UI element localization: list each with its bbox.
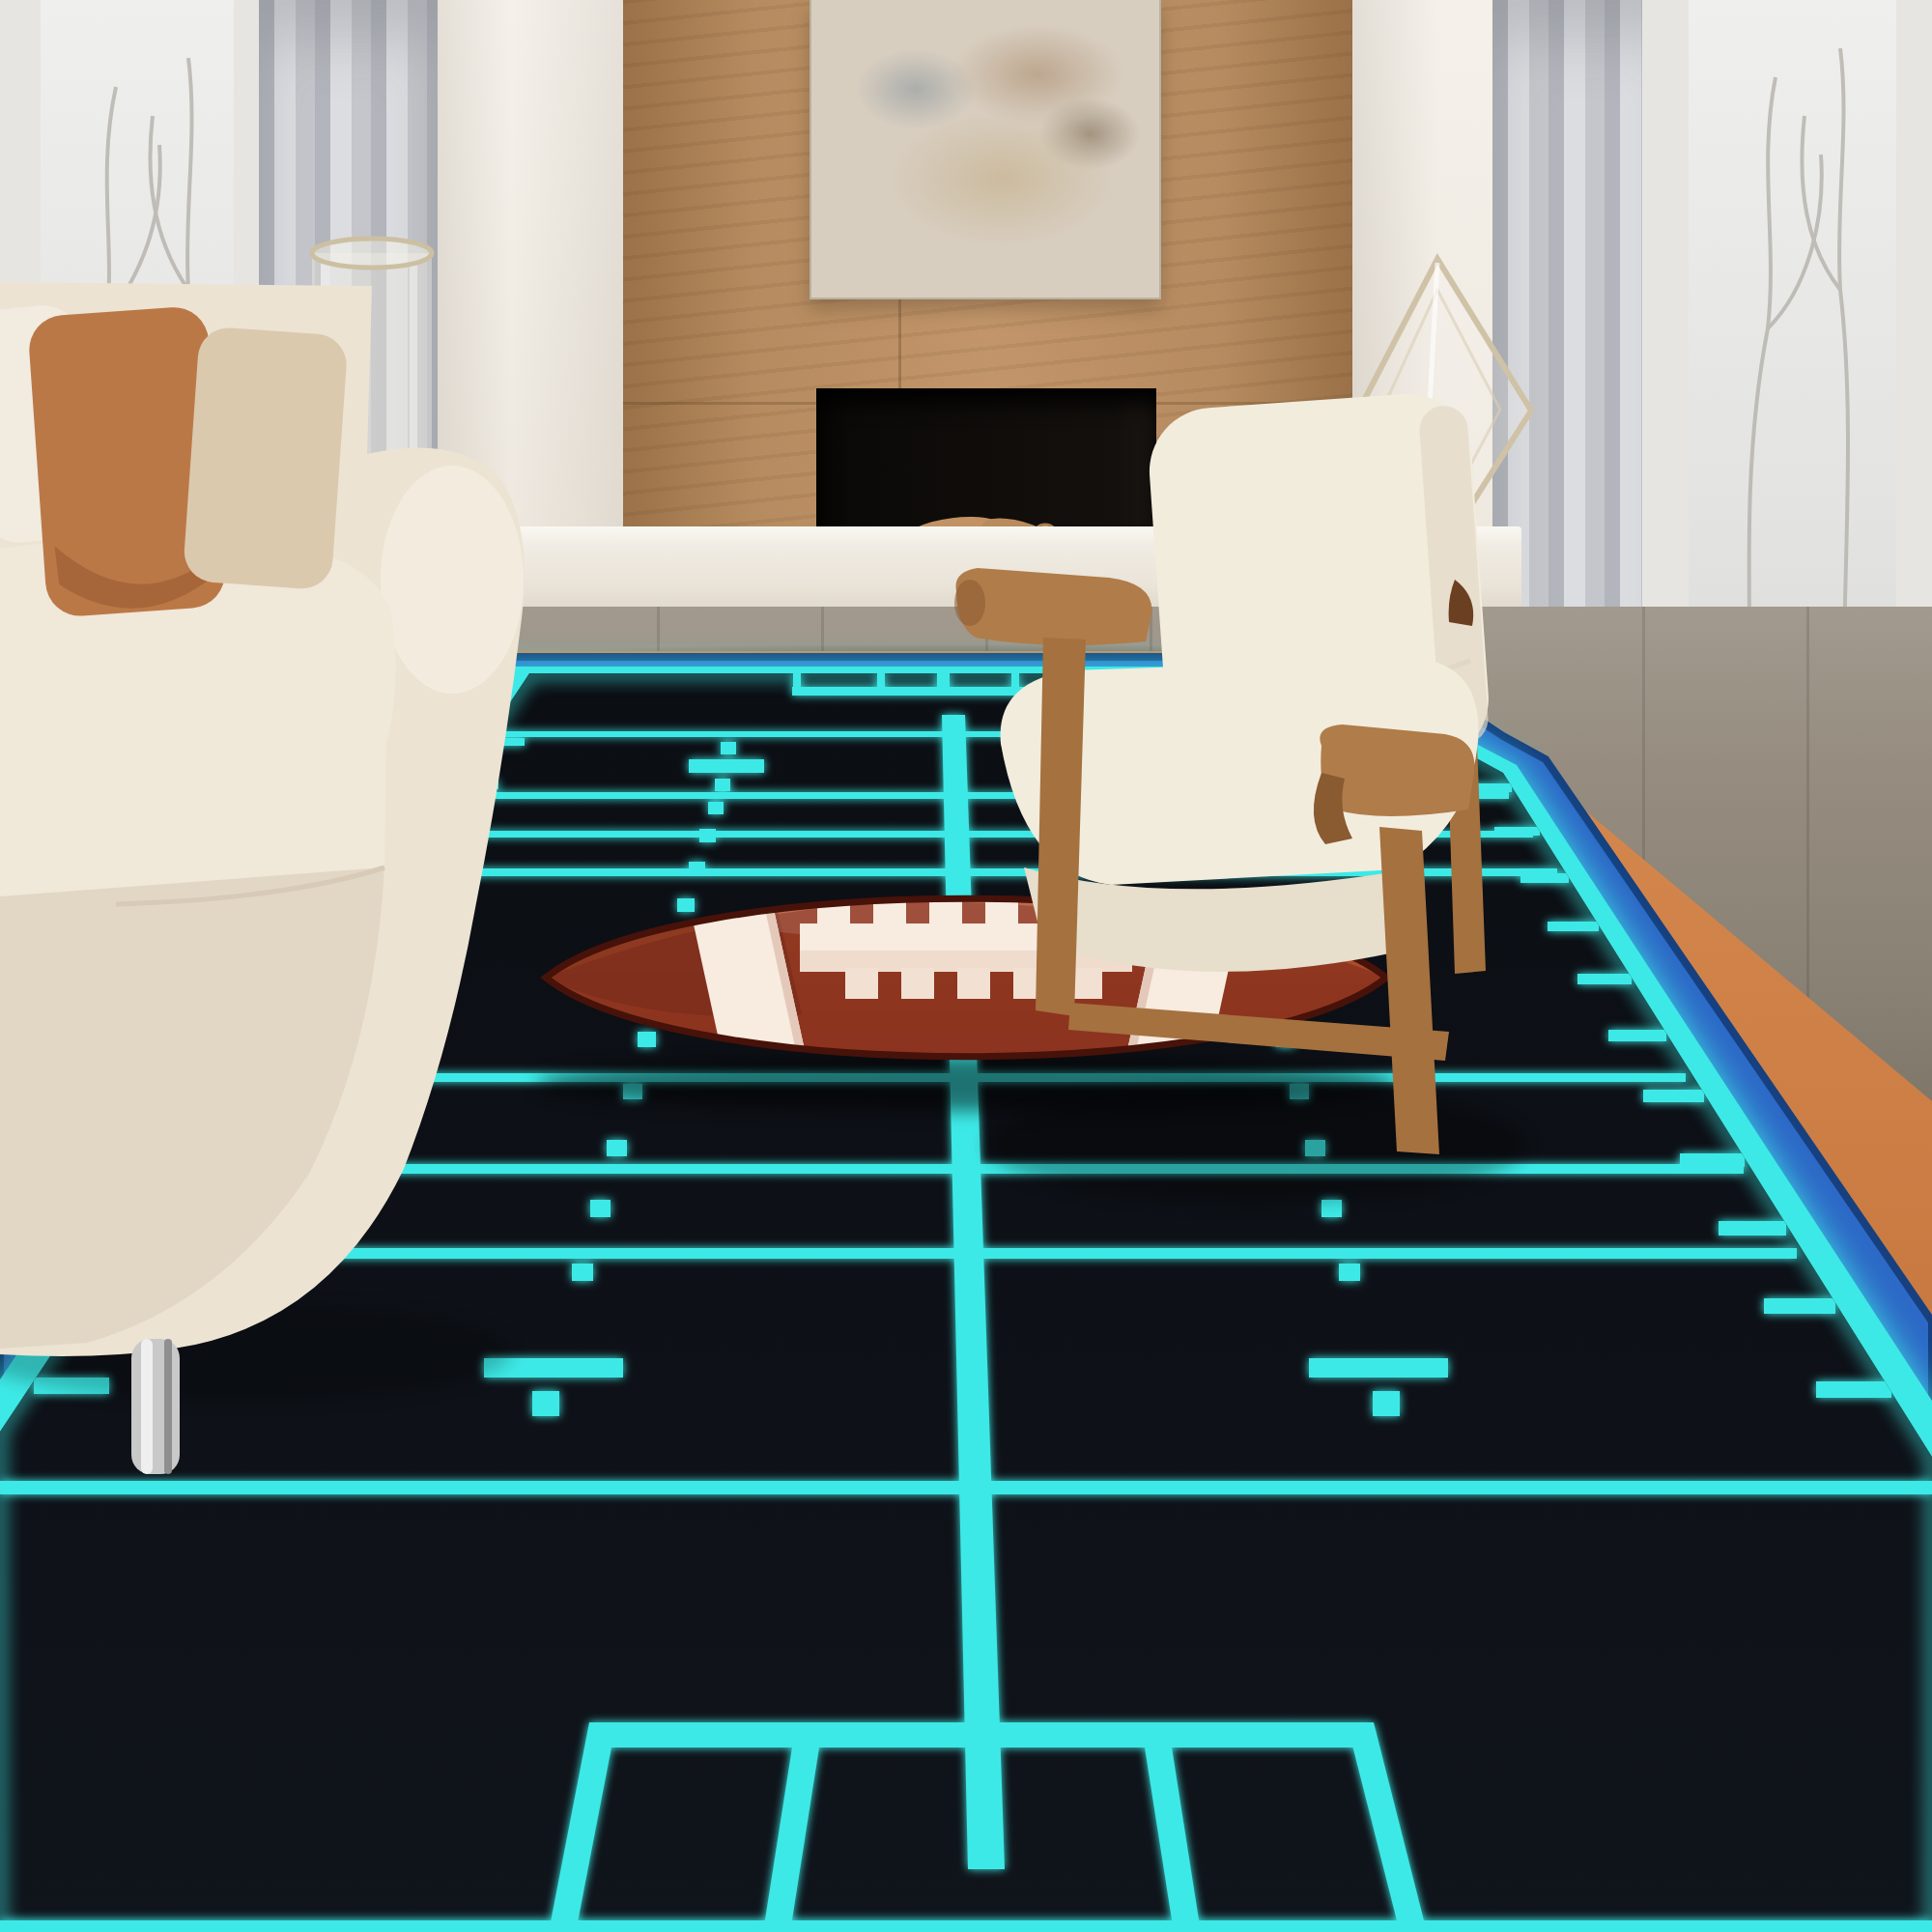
armchair bbox=[0, 0, 1932, 1932]
armchair-armrest-right bbox=[1320, 724, 1474, 816]
living-room-scene bbox=[0, 0, 1932, 1932]
armchair-armrest-left bbox=[955, 568, 1151, 645]
armrest-left-scroll bbox=[954, 580, 985, 626]
armchair-seat-front bbox=[1024, 867, 1399, 972]
armchair-shadow bbox=[985, 1087, 1526, 1203]
armchair-front-left-leg bbox=[1036, 638, 1086, 1016]
